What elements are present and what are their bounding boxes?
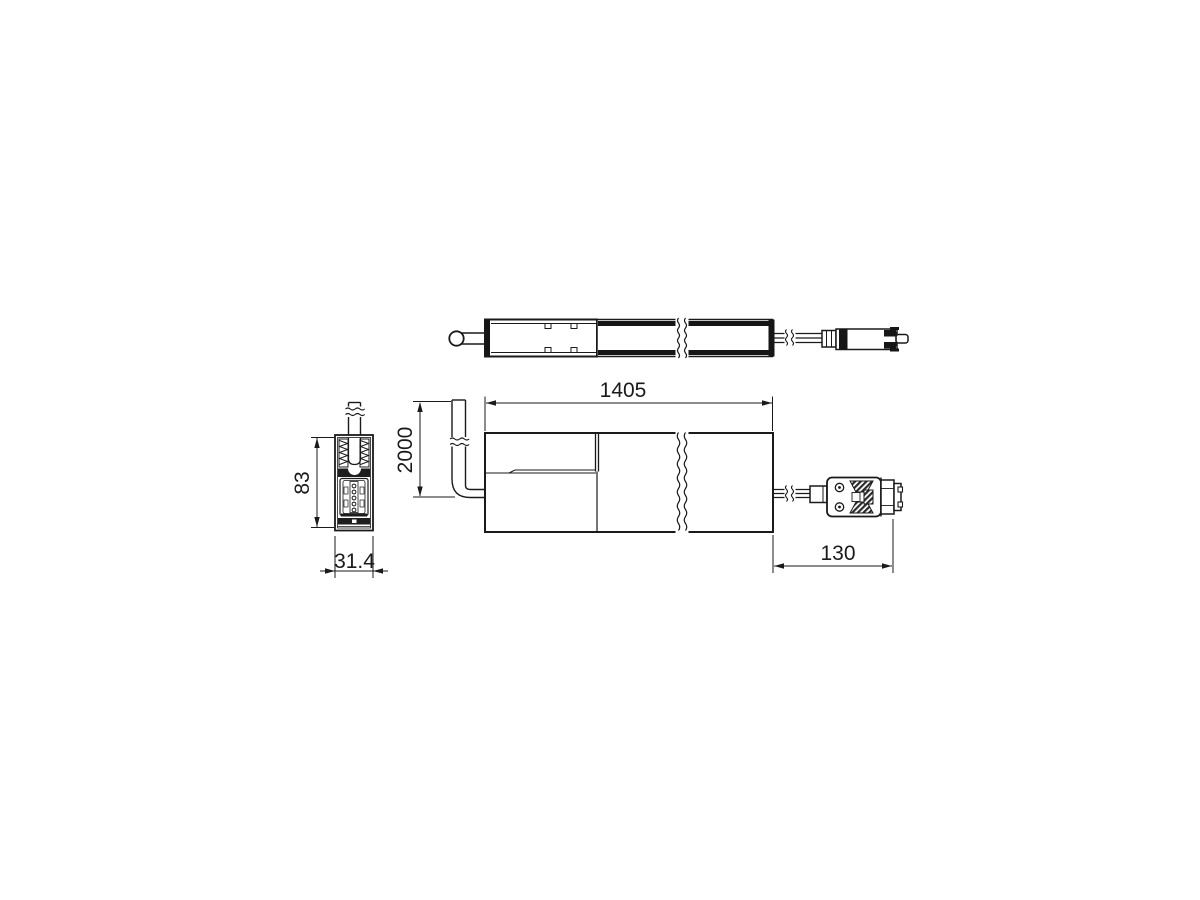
dimension-width-31-4: 31.4 bbox=[320, 536, 388, 578]
top-view-body-section-1 bbox=[485, 320, 597, 357]
side-view-connector bbox=[810, 478, 903, 517]
dimension-cable-2000: 2000 bbox=[394, 402, 455, 498]
technical-drawing-page: 1405 2000 130 bbox=[0, 0, 1200, 900]
end-view-profile bbox=[335, 435, 373, 531]
end-view bbox=[335, 403, 373, 531]
arrowhead bbox=[417, 487, 422, 497]
dimension-length-1405: 1405 bbox=[485, 379, 773, 431]
dimension-label-width: 31.4 bbox=[334, 550, 375, 573]
dimension-label-length: 1405 bbox=[600, 379, 647, 402]
side-view bbox=[449, 400, 903, 534]
top-view-connector bbox=[822, 327, 908, 352]
side-view-supply-cable bbox=[452, 400, 486, 498]
end-view-terminal-block bbox=[340, 479, 368, 517]
end-view-cable-break bbox=[344, 407, 365, 418]
top-view-end-cylinder bbox=[449, 331, 486, 345]
arrowhead bbox=[774, 563, 784, 568]
top-view-cable bbox=[775, 334, 824, 343]
dimension-height-83: 83 bbox=[291, 438, 334, 528]
arrowhead bbox=[486, 400, 496, 405]
dimension-label-height: 83 bbox=[291, 471, 314, 494]
side-view-supply-cable-break bbox=[449, 437, 470, 447]
dimension-connector-130: 130 bbox=[773, 519, 893, 573]
end-view-mid-band bbox=[338, 469, 370, 478]
arrowhead bbox=[314, 517, 319, 527]
arrowhead bbox=[882, 563, 892, 568]
side-view-body bbox=[485, 433, 773, 532]
top-view-break-line bbox=[676, 318, 689, 359]
dimension-label-cable: 2000 bbox=[394, 427, 417, 474]
arrowhead bbox=[417, 402, 422, 412]
side-view-break-line bbox=[676, 432, 689, 534]
side-view-cable-break bbox=[785, 485, 796, 504]
drawing-canvas: 1405 2000 130 bbox=[0, 0, 1200, 900]
arrowhead bbox=[314, 438, 319, 448]
top-view bbox=[449, 318, 908, 359]
top-view-cable-break bbox=[785, 329, 796, 348]
dimension-label-connector: 130 bbox=[820, 542, 855, 565]
arrowhead bbox=[762, 400, 772, 405]
